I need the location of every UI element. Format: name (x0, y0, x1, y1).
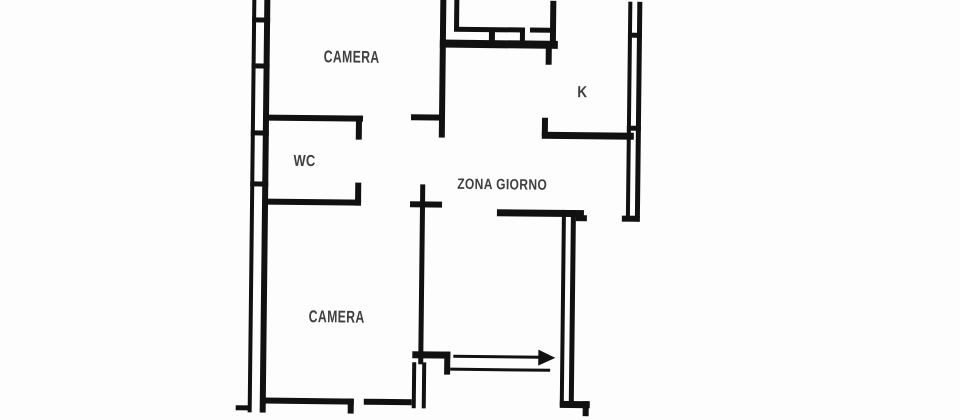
entrance-threshold (450, 368, 550, 372)
door-jamb (410, 201, 442, 207)
wall-bedroom-bottom-right (418, 184, 425, 364)
wall-wc-bottom (266, 199, 361, 206)
wall-living-right-outer (560, 210, 566, 406)
wall-left-inner (260, 0, 271, 413)
window-tick (251, 130, 269, 135)
wall-entrance-jog (444, 352, 450, 375)
room-label-bedroom-top: CAMERA (324, 47, 380, 68)
floor-plan: CAMERA WC ZONA GIORNO K CAMERA (0, 0, 960, 420)
wall-balcony-right (550, 1, 556, 43)
room-label-wc: WC (293, 153, 315, 171)
wall-kitchen-left-upper (546, 47, 552, 65)
window-sill (530, 28, 550, 33)
wall-foot (576, 215, 587, 221)
wall-bedroom-top-bottom (267, 115, 363, 122)
window-tick (250, 181, 268, 186)
door-jamb (411, 114, 445, 120)
wall-bedroom-bottom-right-inner (422, 362, 427, 408)
room-label-living-area: ZONA GIORNO (457, 176, 547, 194)
floor-plan-canvas: CAMERA WC ZONA GIORNO K CAMERA (0, 0, 960, 415)
wall-bedroom-bottom-bottom-b (364, 399, 412, 406)
wall-bedroom-bottom-right-outer (412, 362, 417, 408)
wall-kitchen-bottom (542, 132, 634, 140)
room-label-kitchen: K (577, 84, 587, 102)
entrance-arrow-icon (538, 350, 555, 366)
window-tick (627, 126, 641, 131)
wall-living-right-inner (569, 210, 576, 406)
window-tick (252, 17, 270, 22)
window-tick (628, 33, 642, 38)
wall-bottom-left-tick (236, 405, 250, 410)
entrance-arrow-shaft (453, 355, 541, 359)
wall-edge-bottom-right (583, 401, 589, 416)
wall-balcony-parapet (440, 40, 558, 49)
room-label-bedroom-bottom: CAMERA (309, 307, 365, 328)
wall-left-outer (248, 0, 257, 412)
door-jamb (348, 399, 354, 414)
wall-right-cap (622, 216, 640, 222)
wall-wc-right-upper (356, 116, 362, 140)
wall-bedroom-bottom-bottom-a (264, 398, 354, 405)
window-tick (252, 63, 270, 68)
